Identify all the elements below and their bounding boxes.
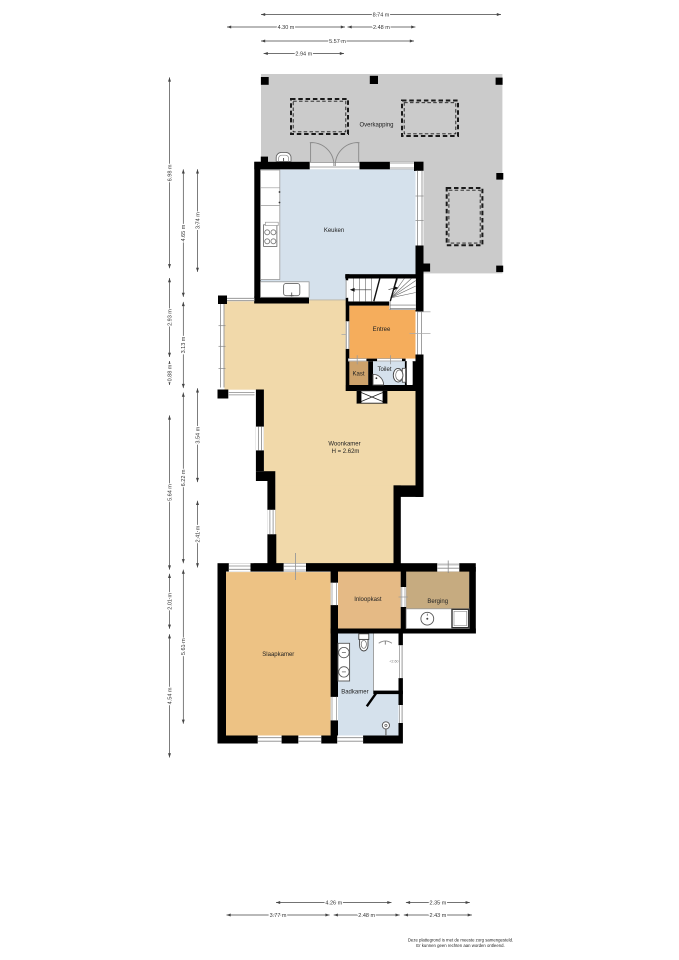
svg-text:Inloopkast: Inloopkast (354, 597, 382, 603)
svg-text:Entree: Entree (373, 327, 391, 333)
svg-text:2.94 m: 2.94 m (295, 51, 312, 57)
svg-text:4.26 m: 4.26 m (325, 900, 342, 906)
svg-text:4.65 m: 4.65 m (181, 224, 187, 241)
svg-text:2.43 m: 2.43 m (429, 913, 446, 919)
svg-text:3.74 m: 3.74 m (195, 212, 201, 229)
svg-text:Overkapping: Overkapping (359, 123, 393, 129)
svg-text:3.13 m: 3.13 m (181, 336, 187, 353)
svg-text:3.54 m: 3.54 m (195, 426, 201, 443)
svg-text:2.93 m: 2.93 m (167, 309, 173, 326)
svg-text:0.88 m: 0.88 m (167, 364, 173, 381)
svg-text:Keuken: Keuken (324, 228, 344, 234)
svg-text:H = 2.62m: H = 2.62m (332, 449, 360, 455)
svg-text:<2.60: <2.60 (389, 660, 398, 664)
svg-text:5.61 m: 5.61 m (181, 638, 187, 655)
svg-text:Woonkamer: Woonkamer (328, 442, 360, 448)
svg-text:Er kunnen geen rechten aan wor: Er kunnen geen rechten aan worden ontlee… (416, 943, 504, 948)
svg-text:6.98 m: 6.98 m (167, 164, 173, 181)
svg-text:Berging: Berging (427, 599, 448, 605)
svg-text:4.54 m: 4.54 m (167, 687, 173, 704)
svg-text:5.64 m: 5.64 m (167, 484, 173, 501)
svg-text:3.77 m: 3.77 m (270, 913, 287, 919)
svg-text:6.22 m: 6.22 m (181, 469, 187, 486)
svg-text:2.48 m: 2.48 m (373, 25, 390, 31)
svg-text:2.35 m: 2.35 m (429, 900, 446, 906)
svg-text:2.41 m: 2.41 m (195, 525, 201, 542)
svg-text:4.30 m: 4.30 m (278, 25, 295, 31)
svg-text:Deze plattegrond is met de mee: Deze plattegrond is met de meeste zorg s… (408, 938, 513, 943)
svg-text:2.01 m: 2.01 m (167, 592, 173, 609)
svg-text:Kast: Kast (352, 372, 364, 378)
svg-text:8.74 m: 8.74 m (373, 12, 390, 18)
svg-text:Badkamer: Badkamer (341, 690, 368, 696)
svg-text:Slaapkamer: Slaapkamer (262, 652, 294, 658)
svg-text:2.48 m: 2.48 m (358, 913, 375, 919)
svg-text:5.57 m: 5.57 m (329, 39, 346, 45)
svg-text:Toilet: Toilet (377, 367, 391, 373)
